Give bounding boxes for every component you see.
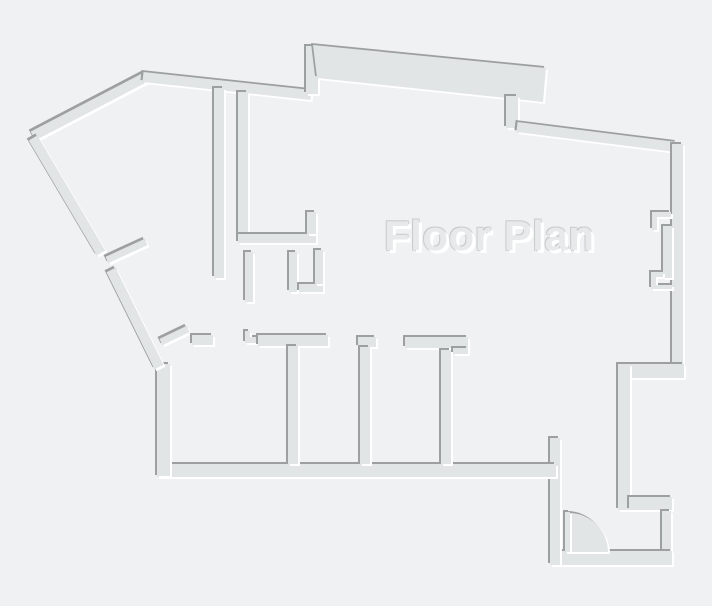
door-jamb-a (245, 331, 258, 343)
door-swing-arc (569, 513, 608, 552)
room-wall-top-c (358, 337, 376, 347)
door-leaf-entry (565, 512, 570, 552)
interior-wall-stub-b (245, 252, 253, 302)
floor-plan-canvas: Floor Plan (0, 0, 712, 606)
room-divider-2 (360, 347, 370, 464)
exterior-wall-right-inset (618, 364, 630, 510)
entry-wall-bottom (550, 551, 672, 565)
exterior-wall-top-terrace (313, 45, 546, 102)
floor-plan-svg (0, 0, 712, 606)
exterior-wall-top-left (143, 77, 311, 95)
window-pane (663, 226, 672, 278)
interior-wall-horizontal-1 (238, 234, 316, 243)
room-wall-top-a (192, 335, 213, 345)
entry-wall-top (629, 497, 672, 510)
exterior-wall-left (157, 364, 170, 476)
interior-wall-vertical-1 (214, 88, 224, 278)
interior-wall-stub-e (315, 250, 323, 284)
door-leaf-west (107, 242, 146, 260)
door-leaf-rooms (161, 329, 188, 342)
interior-wall-stub-a (307, 212, 316, 234)
door-jamb-b (453, 348, 468, 354)
room-wall-top-b (258, 335, 328, 346)
floor-plan-title: Floor Plan (384, 212, 594, 260)
exterior-wall-nw-diagonal (33, 77, 146, 136)
room-divider-1 (288, 346, 298, 464)
interior-wall-stub-d (299, 284, 323, 292)
interior-wall-stub-c (289, 252, 297, 292)
exterior-wall-sw-diagonal-a (33, 138, 101, 253)
exterior-wall-sw-diagonal-b (111, 270, 159, 367)
interior-wall-vertical-2 (238, 92, 248, 242)
exterior-wall-right (672, 144, 683, 366)
room-wall-top-d (405, 337, 468, 348)
entry-wall-left (550, 438, 560, 565)
exterior-wall-bottom (157, 464, 556, 477)
exterior-wall-ne-diagonal (517, 127, 676, 147)
exterior-wall-top-jog (506, 96, 518, 128)
room-divider-3 (441, 350, 451, 464)
entry-wall-right (662, 511, 671, 552)
